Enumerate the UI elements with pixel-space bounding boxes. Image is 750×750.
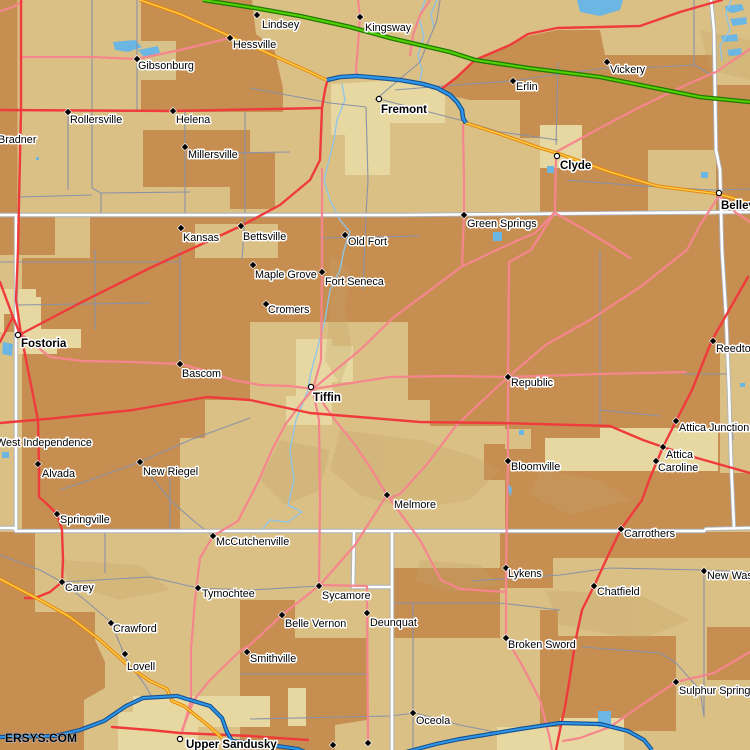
svg-text:New Washington: New Washington: [707, 570, 750, 582]
svg-text:Rollersville: Rollersville: [70, 114, 122, 126]
svg-text:West Independence: West Independence: [0, 437, 92, 449]
svg-text:Bellevue: Bellevue: [721, 200, 750, 212]
svg-text:McCutchenville: McCutchenville: [216, 536, 289, 548]
svg-text:Broken Sword: Broken Sword: [508, 639, 576, 651]
svg-text:Reedtown: Reedtown: [716, 343, 750, 355]
svg-text:Sycamore: Sycamore: [322, 590, 371, 602]
svg-text:Crawford: Crawford: [113, 623, 157, 635]
svg-text:Chatfield: Chatfield: [597, 586, 640, 598]
svg-text:Lindsey: Lindsey: [262, 19, 300, 31]
svg-text:Republic: Republic: [511, 377, 554, 389]
svg-text:Cromers: Cromers: [268, 304, 310, 316]
svg-text:Fostoria: Fostoria: [21, 338, 67, 350]
svg-text:Springville: Springville: [60, 514, 110, 526]
svg-text:Caroline: Caroline: [658, 462, 698, 474]
svg-text:Bradner: Bradner: [0, 134, 37, 146]
svg-text:Attica Junction: Attica Junction: [679, 422, 749, 434]
svg-text:Attica: Attica: [666, 449, 693, 461]
svg-text:Erlin: Erlin: [516, 81, 538, 93]
svg-text:Tymochtee: Tymochtee: [202, 588, 255, 600]
svg-text:Fort Seneca: Fort Seneca: [325, 276, 384, 288]
svg-text:Alvada: Alvada: [42, 468, 75, 480]
svg-text:Old Fort: Old Fort: [348, 236, 387, 248]
svg-text:Kansas: Kansas: [183, 232, 220, 244]
svg-text:Bettsville: Bettsville: [243, 231, 286, 243]
svg-text:Upper Sandusky: Upper Sandusky: [186, 739, 277, 750]
svg-text:Helena: Helena: [176, 114, 210, 126]
svg-text:Green Springs: Green Springs: [467, 218, 537, 230]
svg-text:Lovell: Lovell: [127, 661, 155, 673]
svg-text:Belle Vernon: Belle Vernon: [285, 618, 346, 630]
svg-text:Smithville: Smithville: [250, 653, 296, 665]
svg-text:Oceola: Oceola: [416, 715, 450, 727]
svg-text:Gibsonburg: Gibsonburg: [138, 60, 194, 72]
svg-text:Millersville: Millersville: [188, 149, 238, 161]
svg-text:New Riegel: New Riegel: [143, 466, 198, 478]
svg-text:Fremont: Fremont: [381, 104, 427, 116]
svg-text:Melmore: Melmore: [394, 499, 436, 511]
svg-text:Tiffin: Tiffin: [313, 392, 341, 404]
svg-text:Kingsway: Kingsway: [365, 22, 412, 34]
svg-text:Carey: Carey: [65, 582, 94, 594]
svg-text:Bloomville: Bloomville: [511, 461, 560, 473]
svg-text:ERSYS.COM: ERSYS.COM: [5, 731, 77, 745]
svg-text:Lykens: Lykens: [508, 568, 542, 580]
svg-text:Bascom: Bascom: [182, 368, 221, 380]
svg-text:Clyde: Clyde: [560, 160, 591, 172]
svg-text:Carrothers: Carrothers: [624, 528, 676, 540]
svg-text:Deunquat: Deunquat: [370, 617, 417, 629]
svg-text:Maple Grove: Maple Grove: [255, 269, 317, 281]
svg-text:Hessville: Hessville: [233, 39, 276, 51]
svg-text:Sulphur Springs: Sulphur Springs: [679, 685, 750, 697]
svg-text:Vickery: Vickery: [610, 64, 646, 76]
